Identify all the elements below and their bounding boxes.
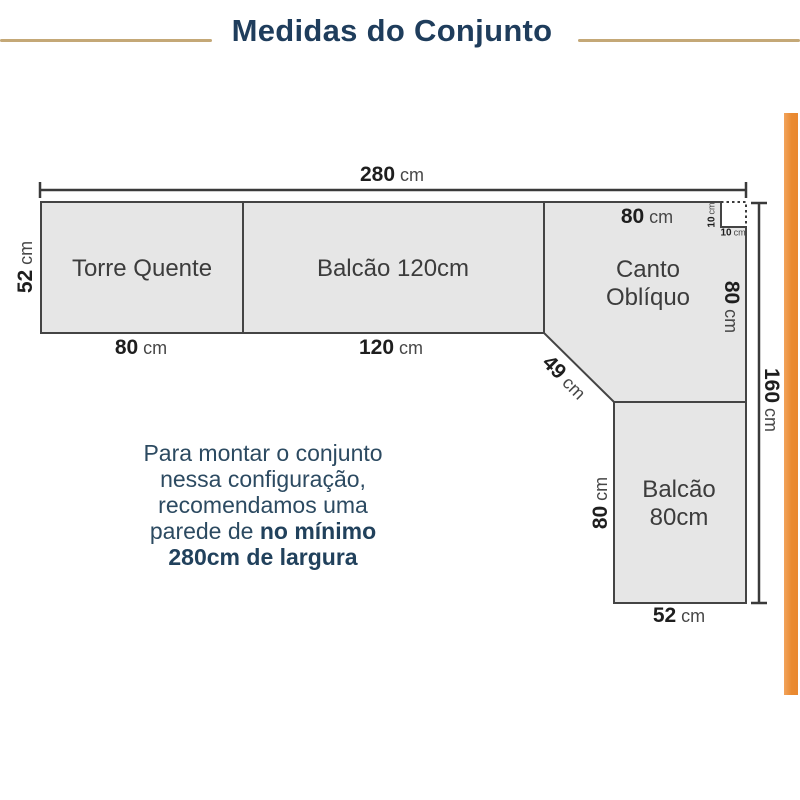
dim-total-height-unit: cm bbox=[760, 408, 781, 432]
dim-canto-top-width-unit: cm bbox=[649, 207, 673, 228]
dim-balcao120-width-unit: cm bbox=[399, 338, 423, 359]
label-canto-obliquo: Canto Oblíquo bbox=[606, 256, 690, 312]
dim-balcao120-width: 120 cm bbox=[359, 336, 423, 360]
dim-canto-top-width-value: 80 bbox=[621, 205, 644, 229]
note-line-1: Para montar o conjunto bbox=[143, 440, 382, 466]
dim-depth-left: 52 cm bbox=[14, 241, 38, 293]
note-line-2: nessa configuração, bbox=[143, 466, 382, 492]
label-canto-obliquo-line1: Canto bbox=[606, 256, 690, 284]
label-torre-quente: Torre Quente bbox=[72, 255, 212, 283]
label-balcao-80-line2: 80cm bbox=[642, 504, 715, 532]
dim-total-width-unit: cm bbox=[400, 165, 424, 186]
dim-notch-horizontal: 10 cm bbox=[720, 228, 745, 239]
dim-balcao80-width-unit: cm bbox=[681, 606, 705, 627]
dim-balcao80-height-unit: cm bbox=[591, 477, 612, 501]
dim-notch-horizontal-value: 10 bbox=[720, 228, 731, 239]
note-line-3: recomendamos uma bbox=[143, 492, 382, 518]
note-line-5: 280cm de largura bbox=[143, 544, 382, 570]
dim-balcao80-height-value: 80 bbox=[589, 506, 613, 529]
dim-total-width-value: 280 bbox=[360, 163, 395, 187]
dim-balcao80-height: 80 cm bbox=[589, 477, 613, 529]
dim-canto-right-depth-unit: cm bbox=[720, 309, 741, 333]
measurement-diagram-page: Medidas do Conjunto Torre Quente Balcão … bbox=[0, 0, 800, 800]
notch-dotted-outline bbox=[721, 202, 746, 227]
dim-torre-width-unit: cm bbox=[143, 338, 167, 359]
note-line-4: parede de no mínimo bbox=[143, 518, 382, 544]
dim-total-width: 280 cm bbox=[360, 163, 424, 187]
label-canto-obliquo-line2: Oblíquo bbox=[606, 284, 690, 312]
dim-total-height: 160 cm bbox=[759, 368, 783, 432]
dim-canto-right-depth: 80 cm bbox=[719, 281, 743, 333]
dim-balcao80-width-value: 52 bbox=[653, 604, 676, 628]
dim-torre-width: 80 cm bbox=[115, 336, 167, 360]
dim-canto-top-width: 80 cm bbox=[621, 205, 673, 229]
dim-canto-right-depth-value: 80 bbox=[719, 281, 743, 304]
label-balcao-80: Balcão 80cm bbox=[642, 476, 715, 532]
dim-notch-horizontal-unit: cm bbox=[734, 228, 746, 238]
dim-notch-vertical: 10 cm bbox=[707, 202, 718, 227]
dim-depth-left-unit: cm bbox=[16, 241, 37, 265]
dim-depth-left-value: 52 bbox=[14, 270, 38, 293]
dim-torre-width-value: 80 bbox=[115, 336, 138, 360]
dim-balcao80-width: 52 cm bbox=[653, 604, 705, 628]
dim-notch-vertical-value: 10 bbox=[707, 216, 718, 227]
label-balcao-120: Balcão 120cm bbox=[317, 255, 469, 283]
dim-balcao120-width-value: 120 bbox=[359, 336, 394, 360]
note-line-4-bold: no mínimo bbox=[260, 518, 376, 544]
dim-total-height-value: 160 bbox=[759, 368, 783, 403]
floorplan-svg bbox=[0, 0, 800, 800]
note-line-4-regular: parede de bbox=[150, 518, 260, 544]
note-text: Para montar o conjunto nessa configuraçã… bbox=[143, 440, 382, 570]
dim-notch-vertical-unit: cm bbox=[707, 202, 717, 214]
label-balcao-80-line1: Balcão bbox=[642, 476, 715, 504]
